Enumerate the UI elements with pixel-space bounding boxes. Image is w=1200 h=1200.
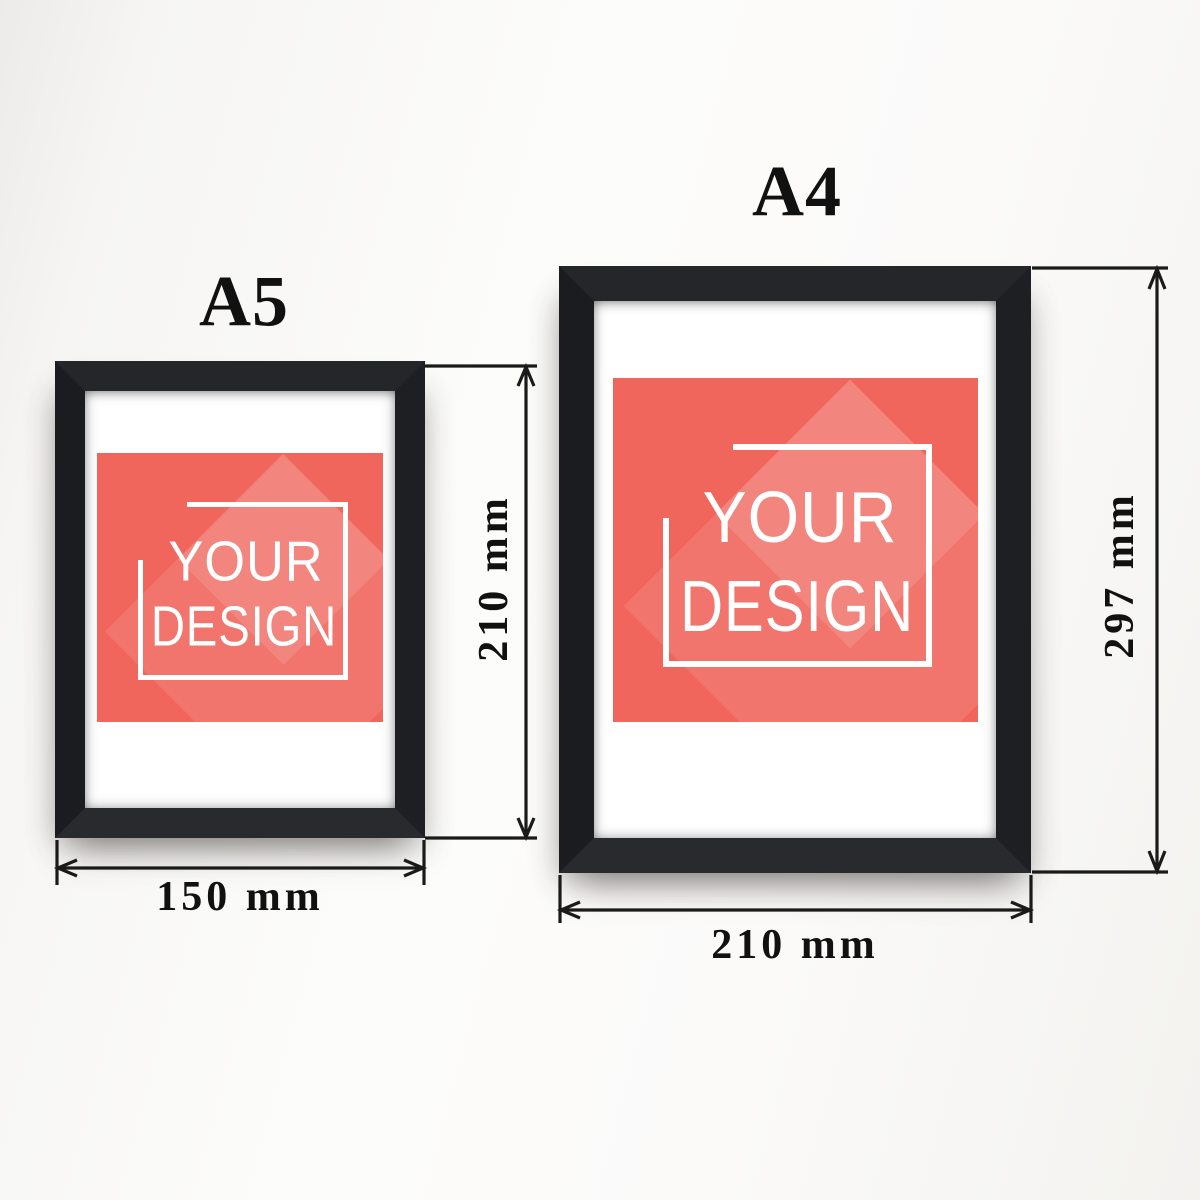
a5-height-label: 210 mm	[470, 494, 518, 661]
wall-background: A5 A4 YOUR DESIGN	[0, 0, 1200, 1200]
design-border-segment	[138, 560, 143, 680]
a5-size-title: A5	[199, 261, 289, 344]
a4-size-title: A4	[752, 151, 842, 234]
a5-design-line2: DESIGN	[151, 599, 337, 656]
a4-width-label: 210 mm	[711, 921, 878, 969]
a5-artwork: YOUR DESIGN	[97, 453, 383, 722]
a5-design-line1: YOUR	[168, 534, 323, 591]
a5-width-label: 150 mm	[156, 873, 323, 921]
a4-design-line1: YOUR	[702, 482, 897, 554]
a4-artwork: YOUR DESIGN	[613, 378, 978, 722]
design-border-segment	[138, 675, 348, 680]
a4-design-line2: DESIGN	[680, 571, 914, 643]
a4-picture-frame: YOUR DESIGN	[559, 266, 1031, 873]
a4-height-label: 297 mm	[1096, 491, 1144, 658]
a5-picture-frame: YOUR DESIGN	[55, 361, 425, 838]
design-border-segment	[733, 444, 932, 450]
design-border-segment	[663, 661, 932, 667]
design-border-segment	[926, 444, 932, 667]
design-border-segment	[663, 518, 669, 667]
design-border-segment	[343, 502, 348, 680]
design-border-segment	[187, 502, 348, 507]
